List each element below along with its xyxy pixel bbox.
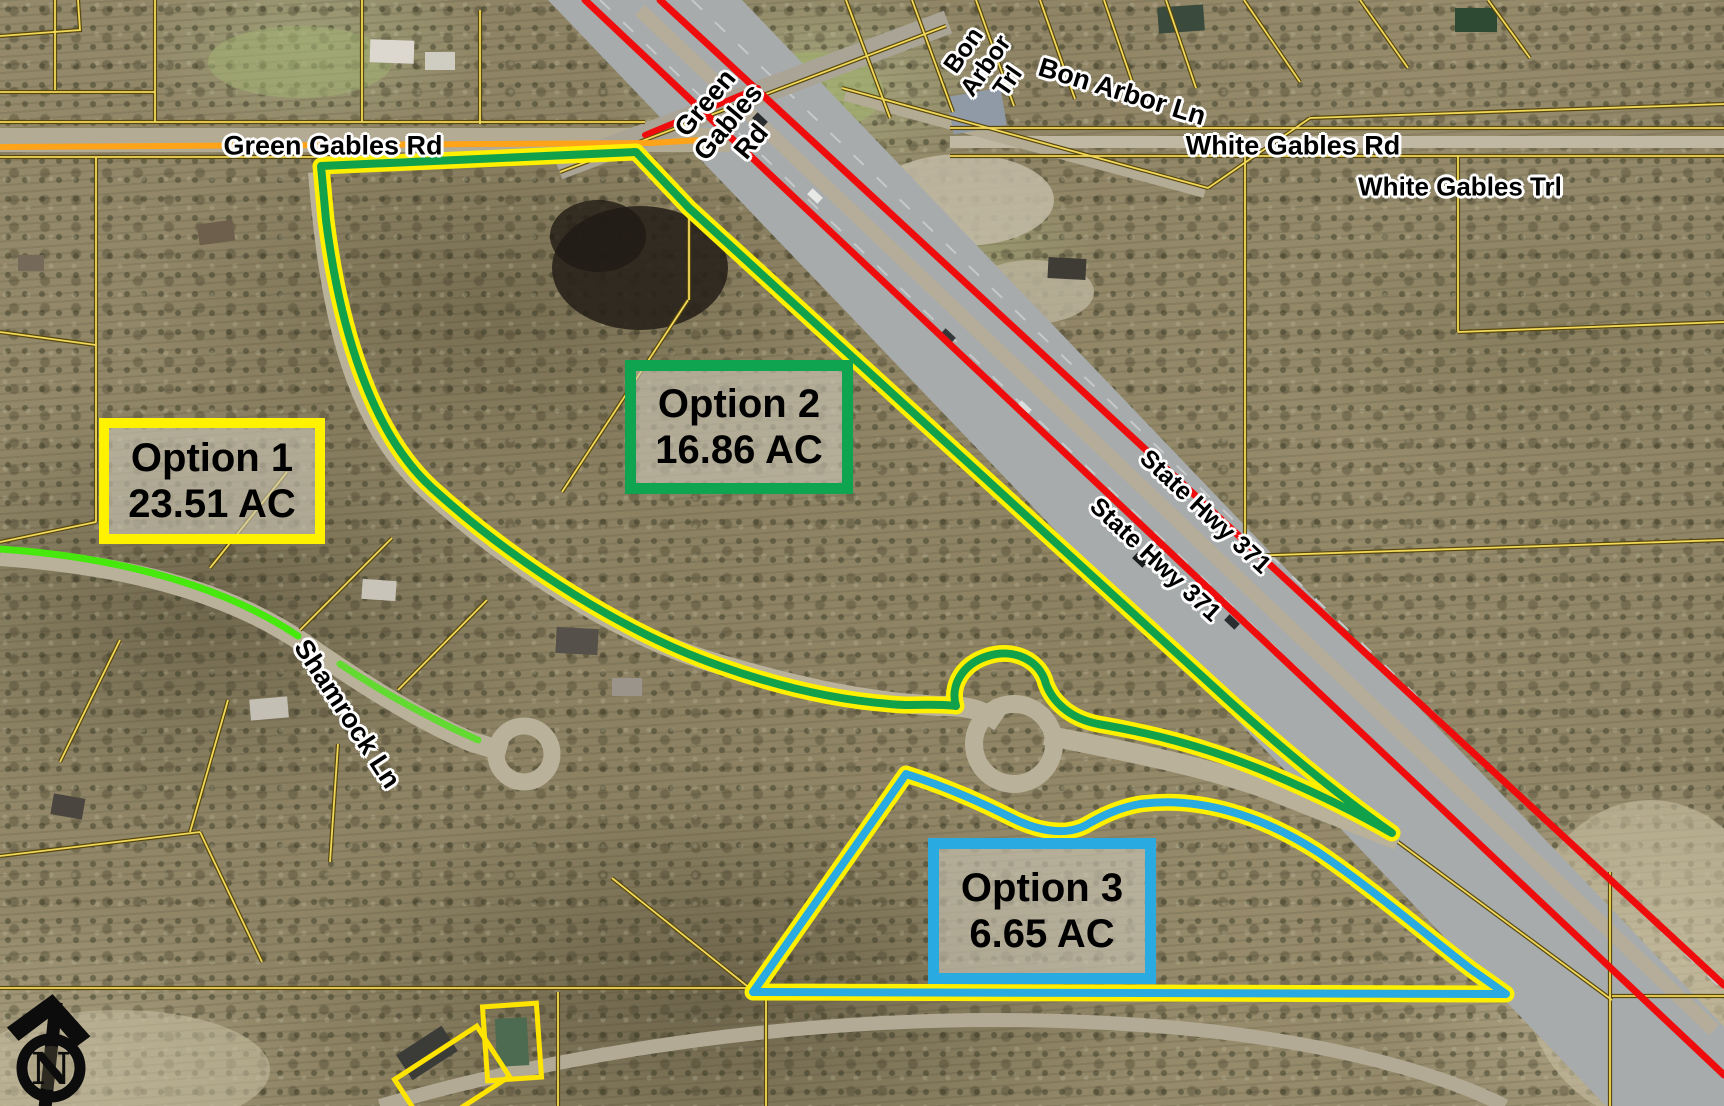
option-2-label-box: Option 2 16.86 AC xyxy=(625,360,853,494)
option-2-title: Option 2 xyxy=(658,381,820,427)
north-arrow: N xyxy=(2,986,102,1106)
option-1-label-box: Option 1 23.51 AC xyxy=(99,418,325,544)
option-3-title: Option 3 xyxy=(961,865,1123,911)
option-2-area: 16.86 AC xyxy=(655,427,823,473)
option-1-title: Option 1 xyxy=(131,435,293,481)
north-arrow-letter: N xyxy=(31,1044,71,1095)
option-3-label-box: Option 3 6.65 AC xyxy=(928,838,1156,984)
roads xyxy=(0,0,1724,1106)
road-label-white-gables-trl: White Gables Trl xyxy=(1358,172,1562,203)
road-label-green-gables-rd-west: Green Gables Rd xyxy=(223,131,442,162)
map-graphics-overlay xyxy=(0,0,1724,1106)
road-label-white-gables-rd: White Gables Rd xyxy=(1186,131,1401,162)
aerial-parcel-map: Green Gables Rd Green Gables Rd Bon Arbo… xyxy=(0,0,1724,1106)
option-1-area: 23.51 AC xyxy=(128,481,296,527)
option-3-area: 6.65 AC xyxy=(969,911,1114,957)
north-arrow-graphic: N xyxy=(2,986,102,1106)
